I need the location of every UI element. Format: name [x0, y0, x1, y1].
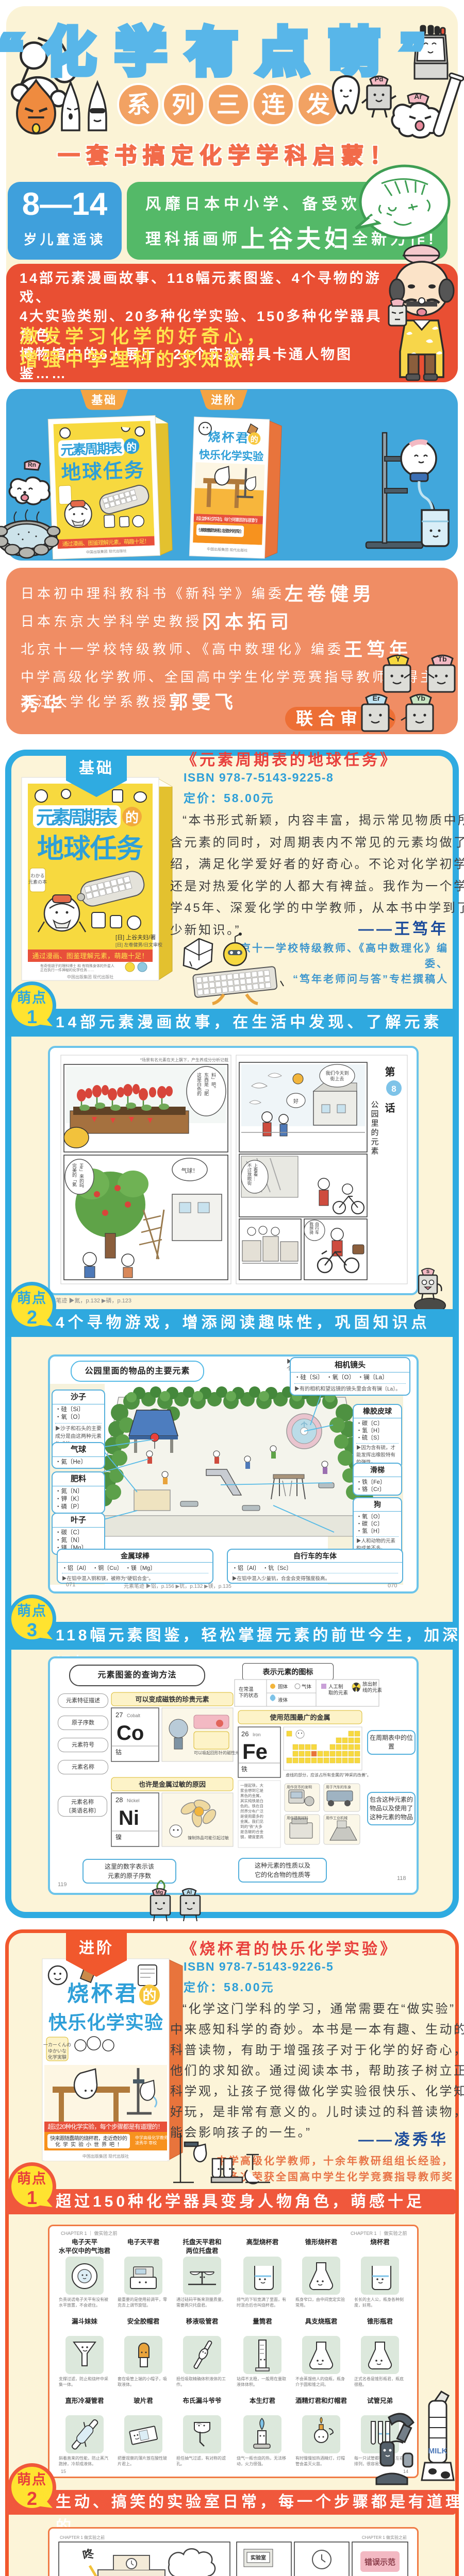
- svg-text:自行车: 自行车: [315, 1222, 320, 1235]
- svg-text:Ar: Ar: [414, 92, 422, 100]
- svg-text:是含碳的合金: 是含碳的合金: [240, 1829, 263, 1834]
- svg-text:下的状态: 下的状态: [239, 1692, 259, 1699]
- svg-text:气球！: 气球！: [181, 1167, 198, 1174]
- svg-text:化学实验小世界吧！: 化学实验小世界吧！: [55, 2141, 122, 2148]
- svg-text:烧杯君: 烧杯君: [208, 430, 248, 446]
- svg-text:Iron: Iron: [253, 1732, 261, 1737]
- svg-text:可以变成磁铁的珍贵元素: 可以变成磁铁的珍贵元素: [135, 1696, 209, 1703]
- svg-text:液体: 液体: [278, 1697, 288, 1703]
- svg-text:わかる: わかる: [30, 873, 44, 878]
- svg-text:超过20种化学实验，每个步骤都是有道理的！: 超过20种化学实验，每个步骤都是有道理的！: [48, 2123, 164, 2130]
- svg-text:28: 28: [115, 1796, 123, 1804]
- svg-text:化学実験: 化学実験: [48, 2054, 67, 2060]
- svg-text:快乐化学实验: 快乐化学实验: [48, 2012, 163, 2033]
- svg-text:人工制: 人工制: [328, 1684, 343, 1690]
- svg-text:好: 好: [293, 1098, 299, 1105]
- svg-text:27: 27: [115, 1711, 123, 1719]
- svg-text:[日] 左卷健男/日文审校: [日] 左卷健男/日文审校: [115, 942, 162, 947]
- svg-text:3: 3: [27, 1619, 37, 1640]
- svg-text:完美的「氦: 完美的「氦: [72, 1163, 77, 1187]
- svg-text:Yb: Yb: [416, 694, 425, 702]
- svg-text:快乐化学实验: 快乐化学实验: [199, 448, 264, 463]
- svg-text:Tb: Tb: [438, 655, 446, 663]
- svg-text:1: 1: [27, 2187, 37, 2208]
- svg-text:家会想到它是: 家会想到它是: [240, 1788, 263, 1793]
- svg-text:气体: 气体: [302, 1684, 312, 1690]
- svg-text:的: 的: [126, 441, 137, 454]
- svg-text:然界分布广泛: 然界分布广泛: [240, 1808, 263, 1814]
- svg-text:凌秀华 审校: 凌秀华 审校: [135, 2140, 157, 2145]
- svg-text:S: S: [426, 1269, 429, 1274]
- svg-text:进阶: 进阶: [211, 394, 237, 406]
- svg-text:基础: 基础: [91, 394, 117, 406]
- svg-text:公园里的元素: 公园里的元素: [370, 1100, 379, 1156]
- svg-text:Ni: Ni: [119, 1807, 139, 1829]
- svg-text:上看看…: 上看看…: [253, 1163, 258, 1181]
- svg-text:快来跟随蠢萌的烧杯君，走近奇妙的: 快来跟随蠢萌的烧杯君，走近奇妙的: [50, 2135, 127, 2142]
- svg-text:萌点: 萌点: [17, 2171, 47, 2187]
- svg-text:一カーくんの: 一カーくんの: [43, 2042, 71, 2047]
- svg-text:是使用最多的: 是使用最多的: [240, 1814, 263, 1819]
- svg-text:元素周期表: 元素周期表: [36, 807, 118, 828]
- svg-text:用作货币的发明: 用作货币的发明: [287, 1785, 312, 1789]
- svg-text:Fe: Fe: [242, 1739, 268, 1764]
- svg-text:使用范围最广的金属: 使用范围最广的金属: [269, 1714, 330, 1721]
- svg-text:Pd: Pd: [375, 75, 384, 83]
- svg-text:不过放眼街: 不过放眼街: [247, 1163, 252, 1185]
- svg-text:黑色的金属，: 黑色的金属，: [240, 1793, 263, 1798]
- svg-text:CHAPTER 1 做实验之前: CHAPTER 1 做实验之前: [60, 2535, 105, 2540]
- svg-text:Rn: Rn: [28, 461, 36, 468]
- svg-text:元素の本: 元素の本: [28, 879, 47, 885]
- svg-text:中学高级化学教师: 中学高级化学教师: [135, 2135, 168, 2140]
- svg-text:中国出版集团 现代出版社: 中国出版集团 现代出版社: [82, 2154, 129, 2159]
- svg-text:取的元素: 取的元素: [328, 1690, 349, 1696]
- svg-text:用作工业机械: 用作工业机械: [326, 1816, 347, 1820]
- svg-text:ゆかいな: ゆかいな: [48, 2048, 67, 2054]
- svg-text:的: 的: [143, 1988, 157, 2004]
- svg-text:Y: Y: [395, 655, 401, 663]
- svg-text:用作建筑材料: 用作建筑材料: [287, 1816, 308, 1820]
- svg-text:通过漫画、图鉴理解元素，萌趣十足！: 通过漫画、图鉴理解元素，萌趣十足！: [32, 952, 148, 960]
- svg-text:烧杯君: 烧杯君: [67, 1981, 137, 2006]
- svg-text:Cobalt: Cobalt: [127, 1713, 141, 1718]
- svg-text:料」吧。: 料」吧。: [211, 1072, 216, 1091]
- svg-text:*场景有名元素在天上飘下，产生养成分分析记载: *场景有名元素在天上飘下，产生养成分分析记载: [140, 1057, 228, 1062]
- svg-text:一提起铁，大: 一提起铁，大: [240, 1783, 263, 1788]
- svg-text:的: 的: [125, 810, 139, 825]
- svg-text:1: 1: [27, 1006, 37, 1027]
- svg-text:萌点: 萌点: [17, 1291, 47, 1306]
- svg-text:固体: 固体: [278, 1684, 288, 1690]
- svg-text:线的元素: 线的元素: [362, 1687, 383, 1693]
- svg-text:虚线的部分，应该占所有金属的"神采的改善"。: 虚线的部分，应该占所有金属的"神采的改善"。: [286, 1772, 371, 1777]
- svg-text:Mg: Mg: [156, 1890, 163, 1895]
- svg-text:可以吸起回形针的磁性元素: 可以吸起回形针的磁性元素: [194, 1750, 243, 1755]
- svg-text:话: 话: [383, 1103, 395, 1115]
- svg-text:其实纯铁是白: 其实纯铁是白: [240, 1798, 263, 1803]
- svg-text:[日] 上谷夫妇/著: [日] 上谷夫妇/著: [115, 934, 156, 941]
- svg-text:也许是金属过敏的原因: 也许是金属过敏的原因: [139, 1781, 206, 1788]
- svg-text:镍: 镍: [115, 1834, 122, 1841]
- svg-text:铁: 铁: [241, 1766, 247, 1773]
- svg-text:2: 2: [27, 1307, 37, 1328]
- svg-text:实验室: 实验室: [251, 2554, 266, 2561]
- svg-text:8: 8: [391, 1084, 396, 1094]
- svg-text:正在执行一件神秘的化学任务……: 正在执行一件神秘的化学任务……: [40, 968, 94, 972]
- svg-text:金属。我们见: 金属。我们见: [240, 1819, 263, 1824]
- svg-text:第: 第: [383, 1066, 395, 1079]
- svg-text:萌点: 萌点: [17, 990, 47, 1006]
- svg-text:地球任务: 地球任务: [37, 834, 143, 864]
- svg-text:Al: Al: [187, 1890, 192, 1895]
- svg-text:东西是「肥: 东西是「肥: [204, 1072, 209, 1096]
- svg-text:有奇怪胡子的理科博士 和 有特殊身体的外星人: 有奇怪胡子的理科博士 和 有特殊身体的外星人: [40, 963, 114, 968]
- svg-text:这是白色的: 这是白色的: [196, 1072, 202, 1096]
- svg-text:我们今天到: 我们今天到: [325, 1070, 349, 1076]
- svg-text:进阶: 进阶: [79, 1940, 114, 1957]
- svg-text:我想骑: 我想骑: [309, 1222, 314, 1235]
- svg-text:Co: Co: [117, 1722, 144, 1744]
- svg-text:Er: Er: [373, 694, 380, 702]
- svg-text:基础: 基础: [79, 760, 114, 777]
- svg-text:用于汽车的车身: 用于汽车的车身: [326, 1785, 351, 1789]
- svg-text:钴: 钴: [115, 1748, 122, 1756]
- svg-text:MILK: MILK: [428, 2447, 448, 2455]
- svg-text:萌点: 萌点: [17, 2472, 47, 2487]
- svg-text:的: 的: [250, 435, 258, 445]
- svg-text:Nickel: Nickel: [127, 1798, 140, 1803]
- svg-text:街上去: 街上去: [330, 1076, 344, 1081]
- svg-text:He」来的吗: He」来的吗: [79, 1163, 84, 1188]
- svg-text:色的。铁在自: 色的。铁在自: [240, 1803, 263, 1808]
- svg-text:在常温: 在常温: [239, 1686, 254, 1692]
- svg-text:中国出版集团 现代出版社: 中国出版集团 现代出版社: [67, 974, 113, 979]
- svg-text:26: 26: [241, 1730, 248, 1738]
- svg-text:钢，硬度更高: 钢，硬度更高: [240, 1834, 263, 1839]
- svg-text:到的"铁"大多: 到的"铁"大多: [240, 1824, 262, 1829]
- svg-text:2: 2: [27, 2488, 37, 2509]
- svg-text:放出射: 放出射: [362, 1681, 377, 1687]
- svg-text:CHAPTER 1 做实验之前: CHAPTER 1 做实验之前: [362, 2535, 407, 2540]
- svg-text:镍制饰品可能引起过敏: 镍制饰品可能引起过敏: [188, 1835, 229, 1840]
- svg-text:错误示范: 错误示范: [364, 2557, 395, 2567]
- svg-text:萌点: 萌点: [17, 1603, 47, 1619]
- svg-text:元素周期表: 元素周期表: [60, 440, 123, 458]
